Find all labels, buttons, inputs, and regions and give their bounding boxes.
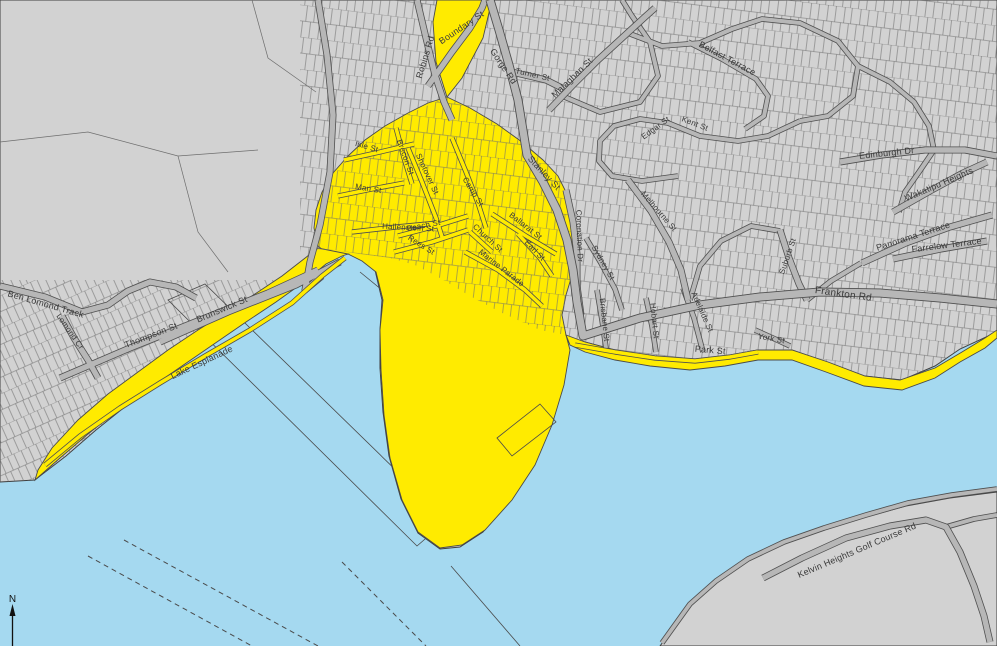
- north-label: N: [9, 594, 16, 605]
- map-canvas: Ben Lomond TrackLomond CrThompson StBrun…: [0, 0, 997, 646]
- street-label: Coronation Dr: [574, 210, 585, 263]
- map-svg: Ben Lomond TrackLomond CrThompson StBrun…: [0, 0, 997, 646]
